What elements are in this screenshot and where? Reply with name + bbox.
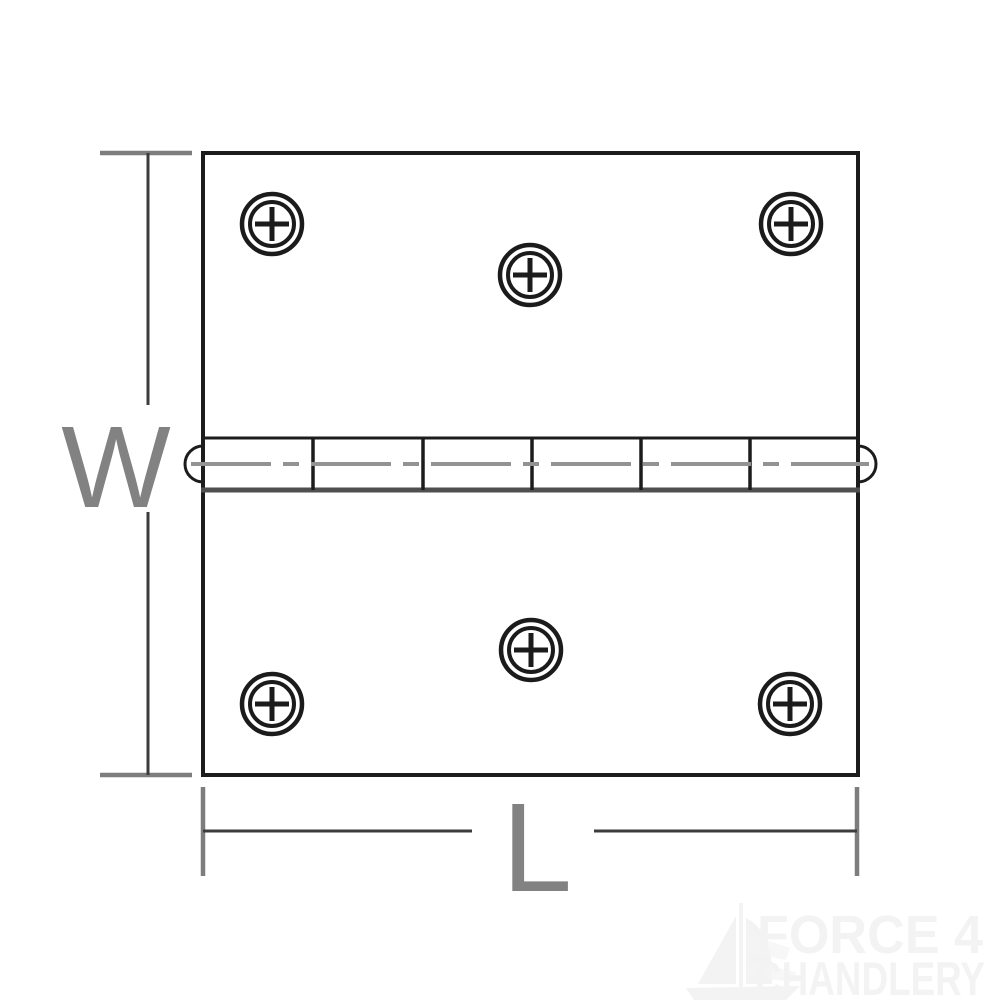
hinge-diagram-svg: FORCE 4 CHANDLERY (0, 0, 1000, 1000)
screw-hole-bottom-left (242, 674, 302, 734)
dimension-width-label: W (61, 402, 171, 532)
brand-watermark: FORCE 4 CHANDLERY (686, 903, 985, 1000)
screw-hole-bottom-right (760, 674, 820, 734)
screw-hole-top-left (242, 194, 302, 254)
watermark-line2: CHANDLERY (755, 952, 985, 1000)
dimension-width: W (61, 153, 192, 775)
dimension-length-label: L (502, 777, 572, 918)
screw-hole-top-right (761, 194, 821, 254)
hinge-dimension-diagram: FORCE 4 CHANDLERY (0, 0, 1000, 1000)
dimension-length: L (203, 777, 857, 918)
screw-hole-top-center (500, 245, 560, 305)
hinge-drawing (185, 153, 876, 775)
screw-hole-bottom-center (501, 620, 561, 680)
